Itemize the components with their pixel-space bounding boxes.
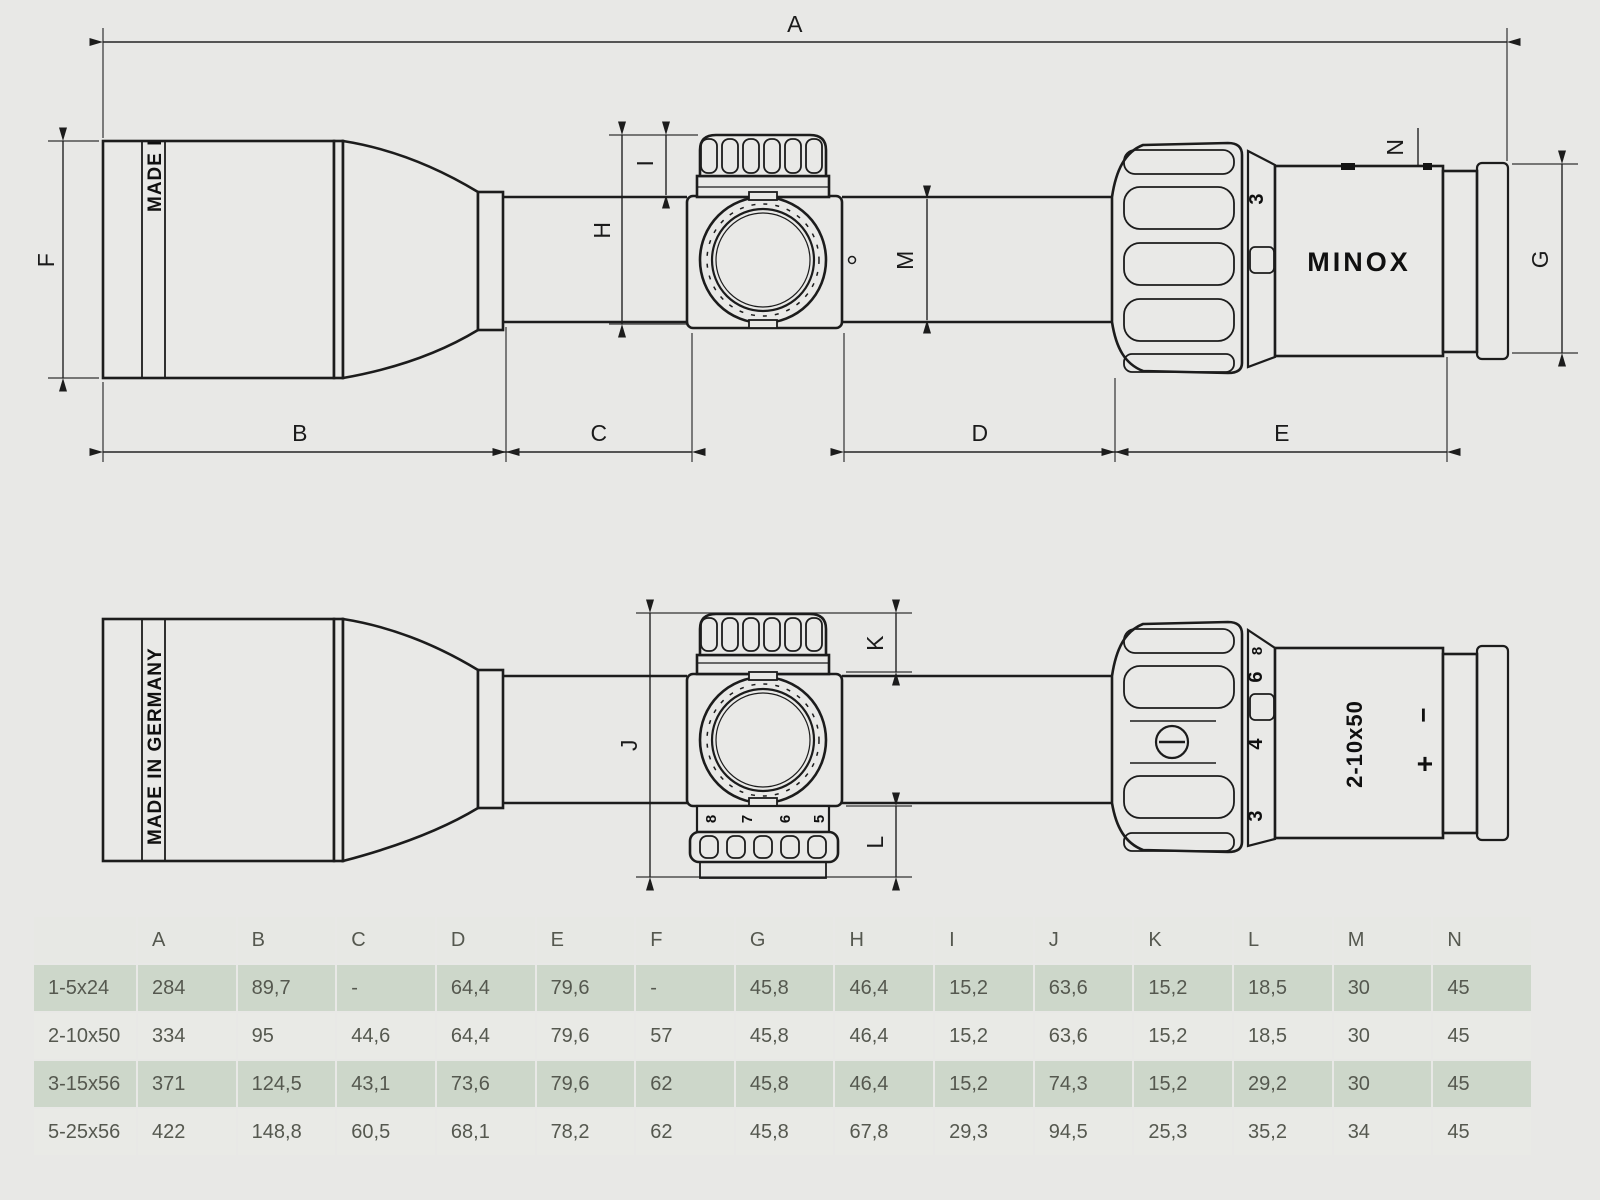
- table-row: 2-10x50 334 95 44,6 64,4 79,6 57 45,8 46…: [34, 1013, 1531, 1059]
- table-cell: 18,5: [1234, 1013, 1332, 1059]
- diopter-knurl-ring: [1477, 163, 1508, 359]
- table-cell: 45: [1433, 965, 1531, 1011]
- table-cell: 45,8: [736, 1013, 834, 1059]
- table-cell: 30: [1334, 1061, 1432, 1107]
- turret-number-8: 8: [703, 815, 720, 823]
- table-cell: 46,4: [835, 1013, 933, 1059]
- column-header: F: [636, 917, 734, 963]
- dim-label-a: A: [787, 11, 803, 37]
- table-cell: 64,4: [437, 965, 535, 1011]
- bottom-scope-view: J K L MADE IN GERMANY: [103, 613, 1508, 878]
- turret-number-5: 5: [811, 815, 828, 823]
- table-cell: 45,8: [736, 1061, 834, 1107]
- minus-marking: −: [1408, 707, 1438, 722]
- table-cell: 45: [1433, 1061, 1531, 1107]
- brand-logo: MINOX: [1307, 247, 1411, 277]
- dimensions-table: A B C D E F G H I J K L M N 1-5x24 284 8…: [32, 915, 1533, 1157]
- dim-label-j: J: [616, 739, 642, 751]
- made-in-germany-partial-label: MADE I: [145, 140, 166, 213]
- column-header: J: [1035, 917, 1133, 963]
- model-cell: 5-25x56: [34, 1109, 136, 1155]
- column-header: M: [1334, 917, 1432, 963]
- dim-n: N: [1382, 128, 1418, 169]
- dim-f: F: [33, 141, 99, 378]
- table-cell: 43,1: [337, 1061, 435, 1107]
- column-header: H: [835, 917, 933, 963]
- column-header: D: [437, 917, 535, 963]
- table-cell: 124,5: [238, 1061, 336, 1107]
- dim-label-l: L: [862, 835, 888, 848]
- column-header: I: [935, 917, 1033, 963]
- table-cell: 34: [1334, 1109, 1432, 1155]
- column-header: [34, 917, 136, 963]
- magnification-scale-band: [1248, 151, 1275, 367]
- table-cell: 62: [636, 1109, 734, 1155]
- table-cell: 46,4: [835, 1061, 933, 1107]
- table-cell: 35,2: [1234, 1109, 1332, 1155]
- dim-label-c: C: [590, 420, 607, 446]
- turret-number-6: 6: [777, 815, 794, 823]
- model-marking: 2-10x50: [1342, 700, 1367, 788]
- model-cell: 2-10x50: [34, 1013, 136, 1059]
- turret-number-7: 7: [739, 815, 756, 823]
- table-cell: 94,5: [1035, 1109, 1133, 1155]
- table-cell: -: [337, 965, 435, 1011]
- riflescope-technical-drawing: A F B C D E: [0, 0, 1600, 905]
- table-cell: 15,2: [935, 1061, 1033, 1107]
- mag-mark-3: 3: [1245, 810, 1267, 821]
- dim-label-f: F: [33, 253, 59, 268]
- dim-m: M: [892, 199, 927, 320]
- tube-index-dot: [849, 257, 856, 264]
- dim-label-e: E: [1274, 420, 1290, 446]
- table-cell: 74,3: [1035, 1061, 1133, 1107]
- table-cell: 422: [138, 1109, 236, 1155]
- dim-label-i: I: [632, 160, 658, 167]
- table-cell: 15,2: [935, 1013, 1033, 1059]
- bottom-scope-body: MADE IN GERMANY: [103, 614, 1508, 878]
- table-cell: 284: [138, 965, 236, 1011]
- dim-label-b: B: [292, 420, 308, 446]
- made-in-germany-label: MADE IN GERMANY: [145, 647, 166, 845]
- mag-mark-6: 6: [1245, 671, 1267, 682]
- table-cell: 29,3: [935, 1109, 1033, 1155]
- table-row: 3-15x56 371 124,5 43,1 73,6 79,6 62 45,8…: [34, 1061, 1531, 1107]
- table-cell: 79,6: [537, 965, 635, 1011]
- table-cell: 44,6: [337, 1013, 435, 1059]
- table-cell: 63,6: [1035, 965, 1133, 1011]
- mag-mark-4: 4: [1245, 738, 1267, 750]
- column-header: A: [138, 917, 236, 963]
- table-cell: 78,2: [537, 1109, 635, 1155]
- column-header: C: [337, 917, 435, 963]
- table-cell: 15,2: [1134, 1013, 1232, 1059]
- model-cell: 1-5x24: [34, 965, 136, 1011]
- table-cell: 15,2: [935, 965, 1033, 1011]
- column-header: N: [1433, 917, 1531, 963]
- table-cell: 63,6: [1035, 1013, 1133, 1059]
- table-cell: 148,8: [238, 1109, 336, 1155]
- table-cell: 67,8: [835, 1109, 933, 1155]
- table-cell: 57: [636, 1013, 734, 1059]
- dim-label-g: G: [1527, 250, 1553, 268]
- table-cell: 371: [138, 1061, 236, 1107]
- table-cell: 30: [1334, 965, 1432, 1011]
- edge-mark: [1341, 163, 1355, 170]
- eyepiece-step-ring: [1443, 654, 1477, 833]
- dimensions-table-wrap: A B C D E F G H I J K L M N 1-5x24 284 8…: [32, 915, 1533, 1157]
- dim-g: G: [1512, 164, 1578, 353]
- table-cell: 79,6: [537, 1013, 635, 1059]
- table-row: 1-5x24 284 89,7 - 64,4 79,6 - 45,8 46,4 …: [34, 965, 1531, 1011]
- table-cell: 60,5: [337, 1109, 435, 1155]
- table-cell: 73,6: [437, 1061, 535, 1107]
- top-scope-view: A F B C D E: [33, 11, 1578, 462]
- table-cell: 334: [138, 1013, 236, 1059]
- table-header-row: A B C D E F G H I J K L M N: [34, 917, 1531, 963]
- top-scope-body: MADE I: [103, 135, 1508, 378]
- table-cell: 15,2: [1134, 965, 1232, 1011]
- table-cell: 68,1: [437, 1109, 535, 1155]
- dim-label-h: H: [589, 221, 615, 238]
- column-header: E: [537, 917, 635, 963]
- mag-mark-8: 8: [1249, 647, 1266, 655]
- column-header: K: [1134, 917, 1232, 963]
- table-cell: -: [636, 965, 734, 1011]
- table-cell: 46,4: [835, 965, 933, 1011]
- bottom-turret-knurl: [700, 862, 826, 878]
- column-header: L: [1234, 917, 1332, 963]
- dim-label-d: D: [971, 420, 988, 446]
- table-row: 5-25x56 422 148,8 60,5 68,1 78,2 62 45,8…: [34, 1109, 1531, 1155]
- table-cell: 15,2: [1134, 1061, 1232, 1107]
- table-cell: 18,5: [1234, 965, 1332, 1011]
- table-cell: 45: [1433, 1109, 1531, 1155]
- table-cell: 29,2: [1234, 1061, 1332, 1107]
- edge-mark: [1423, 163, 1432, 170]
- dim-label-m: M: [892, 250, 918, 270]
- eyepiece-step-ring: [1443, 171, 1477, 352]
- plus-marking: +: [1409, 756, 1440, 772]
- model-cell: 3-15x56: [34, 1061, 136, 1107]
- table-cell: 30: [1334, 1013, 1432, 1059]
- table-cell: 45,8: [736, 965, 834, 1011]
- table-cell: 62: [636, 1061, 734, 1107]
- dim-label-n: N: [1382, 138, 1408, 155]
- table-cell: 25,3: [1134, 1109, 1232, 1155]
- table-cell: 45: [1433, 1013, 1531, 1059]
- table-cell: 64,4: [437, 1013, 535, 1059]
- table-cell: 89,7: [238, 965, 336, 1011]
- table-cell: 45,8: [736, 1109, 834, 1155]
- mag-mark-3: 3: [1246, 193, 1268, 204]
- dim-label-k: K: [862, 635, 888, 651]
- table-cell: 79,6: [537, 1061, 635, 1107]
- column-header: G: [736, 917, 834, 963]
- diopter-knurl-ring: [1477, 646, 1508, 840]
- dims-hi: H I: [589, 135, 698, 324]
- column-header: B: [238, 917, 336, 963]
- table-cell: 95: [238, 1013, 336, 1059]
